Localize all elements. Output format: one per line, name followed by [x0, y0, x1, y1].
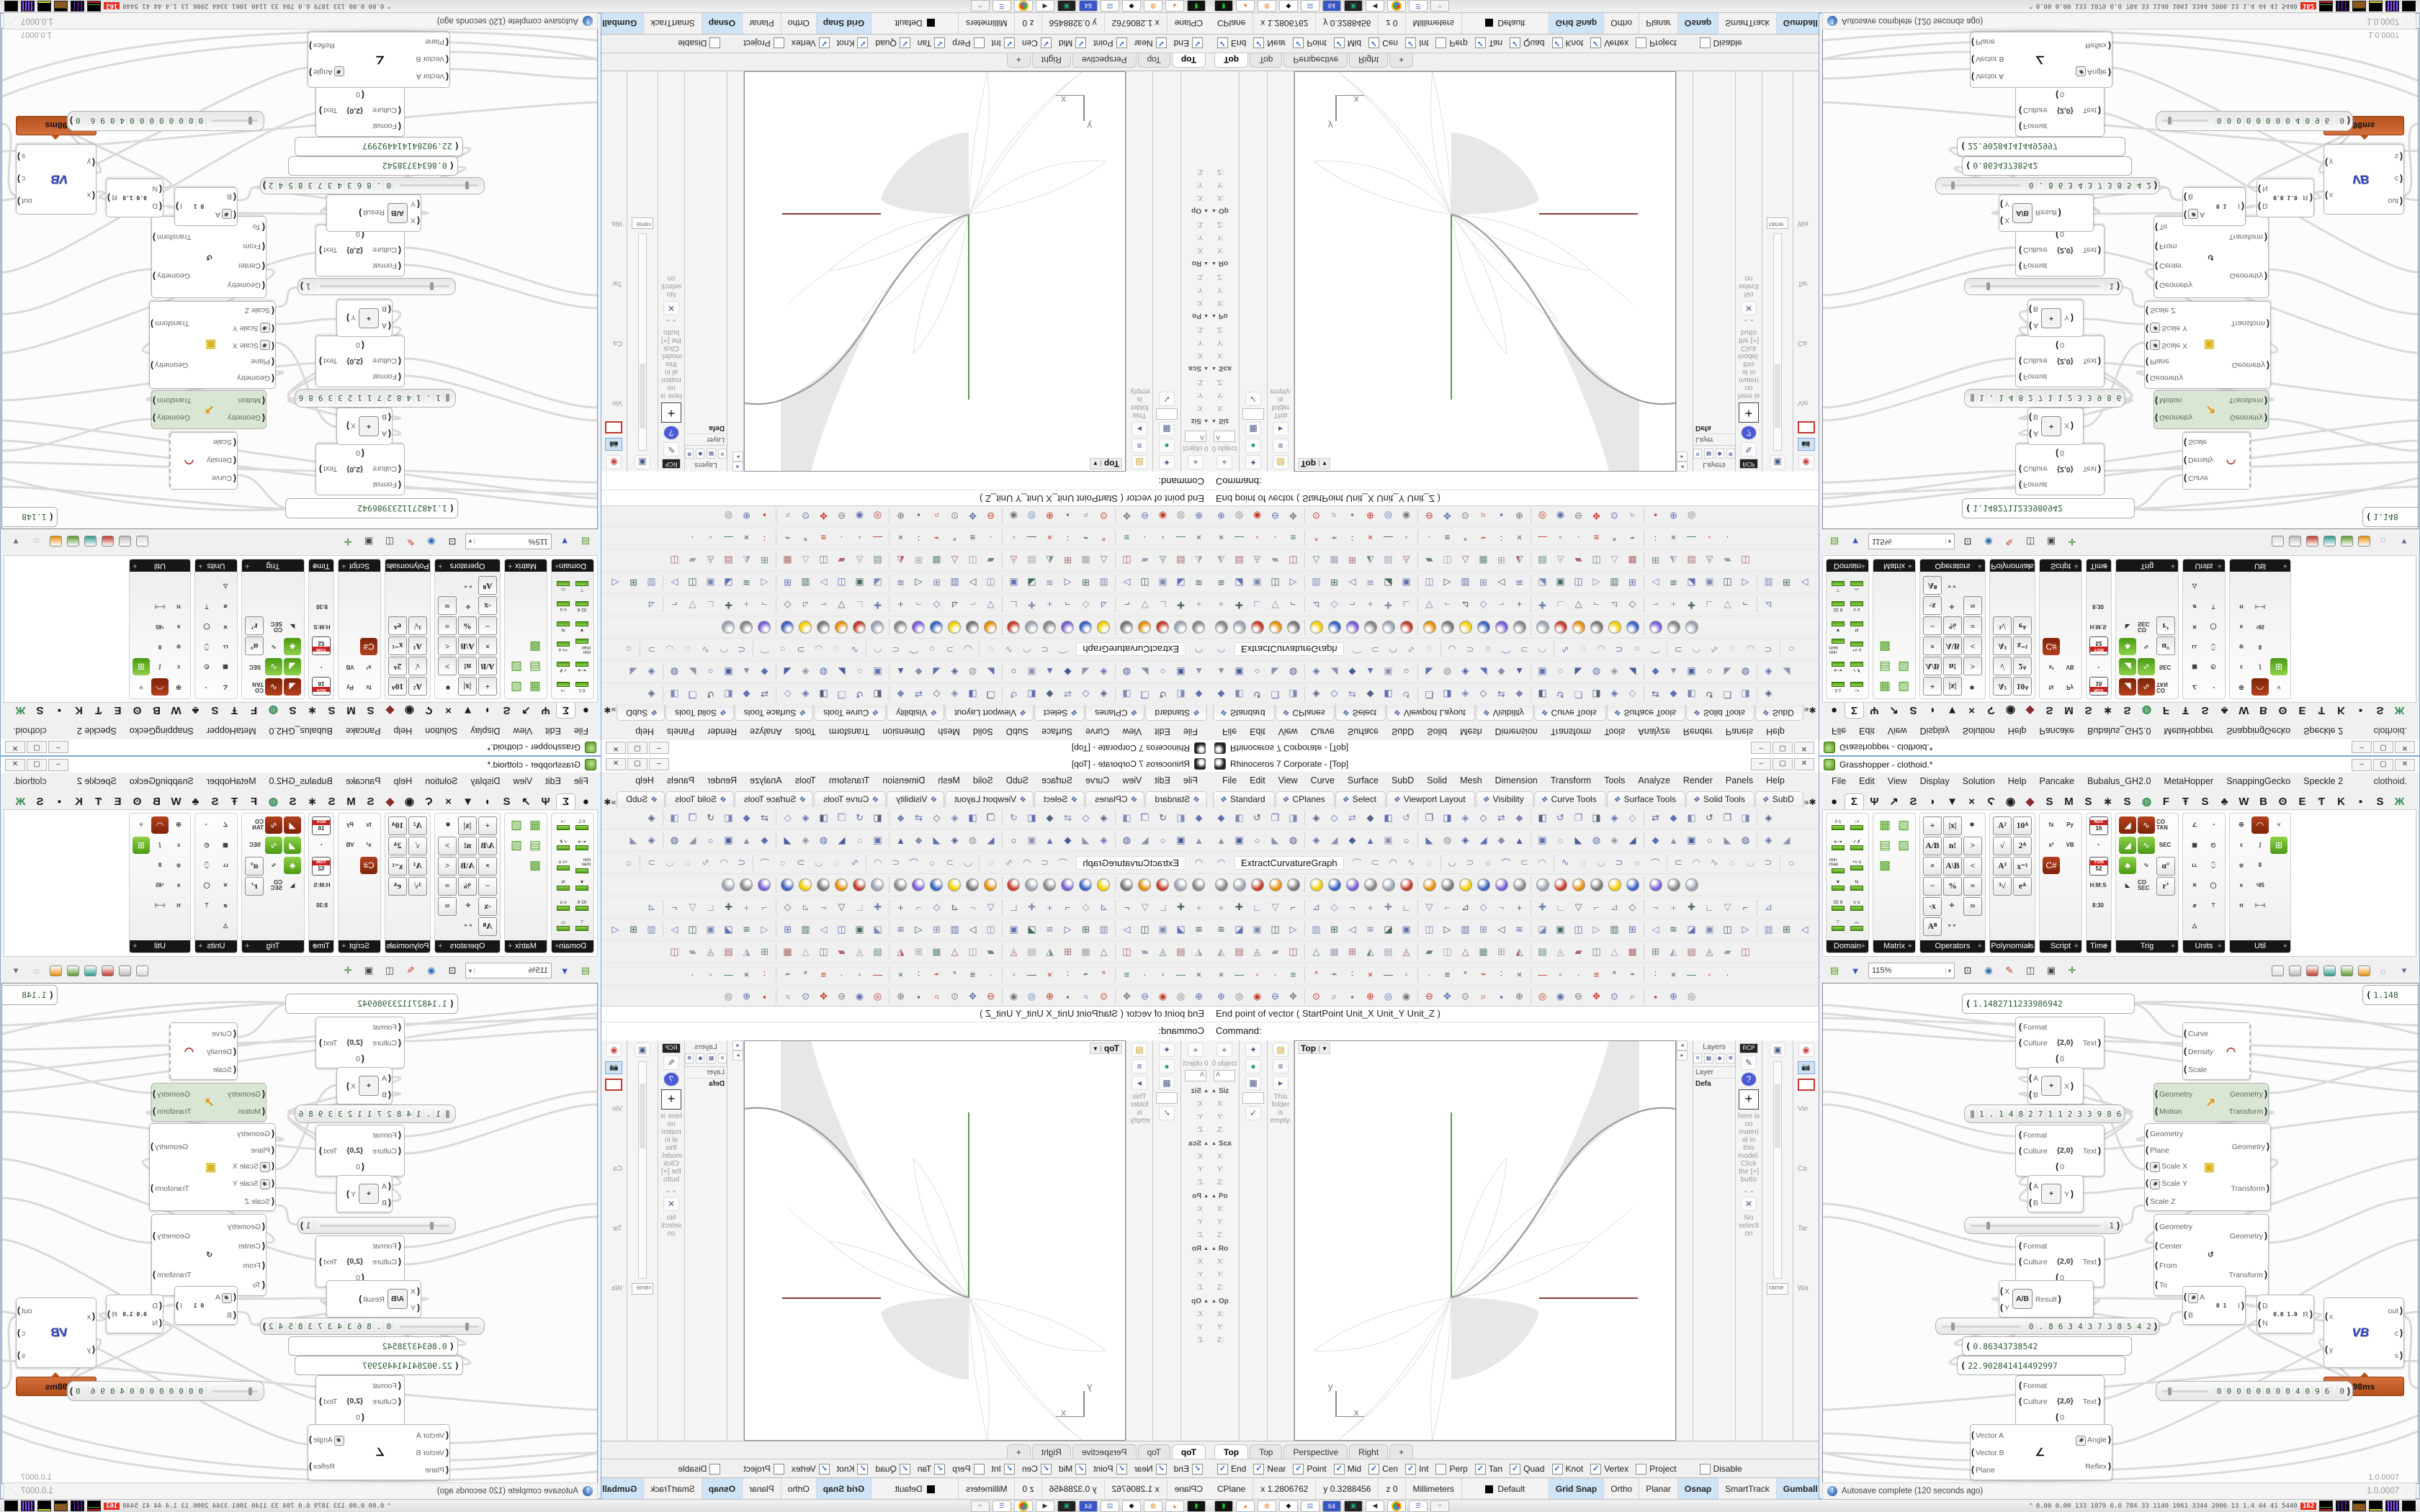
component-icon[interactable]: NOV16: [312, 816, 331, 835]
section-header-siz[interactable]: ▲Siz: [1183, 417, 1209, 425]
component-icon[interactable]: CO SEC: [265, 618, 282, 635]
node-domain[interactable]: ✱AB0 1I: [2182, 1286, 2246, 1325]
toolbar-icon[interactable]: [1569, 876, 1587, 894]
toolbar-icon[interactable]: ⊙: [1456, 988, 1474, 1005]
input-scale[interactable]: Scale: [2184, 1064, 2213, 1074]
input-scale[interactable]: Scale: [207, 438, 236, 448]
toolbar-icon[interactable]: ❐: [1266, 809, 1284, 827]
toolbar-icon[interactable]: [1095, 618, 1113, 636]
gh-tab-22[interactable]: B: [148, 796, 166, 809]
gh-tab-13[interactable]: S: [2079, 796, 2097, 809]
component-icon[interactable]: +v u: [555, 857, 572, 874]
toolbar-icon[interactable]: ◍: [665, 832, 684, 849]
input-n[interactable]: N: [152, 1318, 162, 1328]
component-icon[interactable]: fx: [360, 816, 377, 834]
toolbar-icon[interactable]: ◡: [1592, 641, 1610, 658]
component-icon[interactable]: ▭: [555, 577, 572, 595]
gh-tab-7[interactable]: ×: [1963, 703, 1981, 716]
toolbar-icon[interactable]: ◇: [779, 596, 797, 613]
toolbar-tab-solid-tools[interactable]: ❖Solid Tools: [1686, 791, 1754, 807]
component-icon[interactable]: ∿: [265, 816, 282, 834]
toolbar-icon[interactable]: ▣: [720, 832, 738, 849]
toolbar-icon[interactable]: ▣: [1172, 832, 1190, 849]
component-icon[interactable]: ∿: [2138, 638, 2155, 655]
toolbar-icon[interactable]: ◣: [1136, 663, 1154, 680]
menu-item-dimension[interactable]: Dimension: [1489, 774, 1544, 787]
component-icon[interactable]: ⇆: [555, 877, 572, 894]
view-tab-perspective[interactable]: Perspective: [1283, 53, 1348, 68]
input-b[interactable]: B: [2184, 193, 2205, 203]
toolbar-icon[interactable]: ⇄: [1343, 809, 1361, 827]
component-icon[interactable]: SEC: [246, 658, 264, 675]
toolbar-icon[interactable]: ◍: [1438, 663, 1456, 680]
component-icon[interactable]: φ: [170, 638, 187, 655]
component-icon[interactable]: 8:30: [2089, 897, 2107, 914]
component-icon[interactable]: ⇆: [1848, 877, 1865, 894]
gh-maximize-button[interactable]: ▢: [27, 759, 47, 771]
node-range[interactable]: DN0.0 1.0R: [106, 1295, 163, 1333]
component-icon[interactable]: %: [1943, 877, 1962, 896]
scroll-thumb[interactable]: [1775, 1084, 1780, 1148]
toolbar-icon[interactable]: ◣: [982, 832, 1000, 849]
gear-icon[interactable]: ❋: [1726, 1053, 1735, 1063]
input-x[interactable]: X: [2000, 217, 2009, 227]
component-icon[interactable]: n!: [1943, 837, 1962, 855]
toolbar-icon[interactable]: ◢: [1077, 663, 1095, 680]
monitor-chevron-icon[interactable]: ⌃: [387, 1503, 390, 1510]
toolbar-icon[interactable]: ◧: [720, 809, 738, 827]
ribbon-panel-label[interactable]: Domain+: [1827, 559, 1868, 572]
toolbar-icon[interactable]: ○: [774, 854, 792, 871]
component-icon[interactable]: CO TAN: [2156, 816, 2174, 834]
gh-tab-23[interactable]: ʘ: [2274, 796, 2292, 809]
output-y[interactable]: Y: [346, 1189, 356, 1199]
toolbar-icon[interactable]: ◆: [1343, 663, 1361, 680]
toolbar-icon[interactable]: ◡: [810, 854, 828, 871]
toolbar-icon[interactable]: ⊿: [1307, 899, 1325, 916]
toolbar-icon[interactable]: ◢: [779, 663, 797, 680]
toolbar-icon[interactable]: ◌: [828, 854, 846, 871]
menu-item-panels[interactable]: Panels: [1719, 774, 1760, 787]
toolbar-icon[interactable]: ◭: [1361, 943, 1379, 960]
input-data[interactable]: 0: [2056, 90, 2064, 99]
checkbox-icon[interactable]: ✓: [1475, 1464, 1486, 1475]
checkbox-icon[interactable]: [709, 38, 720, 49]
gh-tab-15[interactable]: S: [2118, 703, 2136, 716]
panel-expand-icon[interactable]: +: [198, 940, 202, 952]
toolbar-icon[interactable]: ○: [1005, 663, 1023, 680]
input-data[interactable]: 0: [2056, 1055, 2064, 1063]
toolbar-icon[interactable]: [1456, 618, 1474, 636]
node-scale-nu[interactable]: GeometryPlane✱Scale X✱Scale YScale Z▣Geo…: [149, 301, 276, 389]
input-scale-y[interactable]: ✱Scale Y: [233, 1178, 274, 1189]
gh-menu-item-view[interactable]: View: [506, 775, 539, 788]
gh-menu-item-file[interactable]: File: [568, 775, 595, 788]
toolbar-icon[interactable]: ◪: [1023, 921, 1041, 938]
node-format-fmt4[interactable]: FormatCulture{2,0}Text0: [2015, 1375, 2105, 1427]
toolbar-icon[interactable]: ◠: [869, 641, 887, 658]
input-culture[interactable]: Culture: [2019, 1258, 2048, 1266]
toolbar-icon[interactable]: ⌐: [665, 596, 684, 613]
viewport-menu-arrow-icon[interactable]: ▼: [1093, 1045, 1101, 1052]
toolbar-icon[interactable]: [1212, 618, 1230, 636]
toolbar-icon[interactable]: ⊿: [1095, 899, 1113, 916]
toolbar-icon[interactable]: [1023, 876, 1041, 894]
toolbar-icon[interactable]: ▽: [982, 899, 1000, 916]
toolbar-icon[interactable]: ▪: [1492, 988, 1510, 1005]
component-icon[interactable]: ✓✗: [555, 658, 572, 675]
input-from[interactable]: From: [2155, 243, 2192, 253]
taskbar-floppy-icon[interactable]: 64: [1322, 1, 1341, 12]
component-icon[interactable]: ✓✗: [555, 837, 572, 854]
view-tab-top[interactable]: Top: [1172, 53, 1206, 68]
osnap-disable[interactable]: Disable: [1700, 1464, 1742, 1475]
component-icon[interactable]: ▩: [526, 638, 544, 655]
toolbar-icon[interactable]: ▰: [833, 552, 851, 569]
component-icon[interactable]: rʼ: [245, 616, 264, 635]
toolbar-icon[interactable]: ⊞: [910, 943, 928, 960]
panel-expand-icon[interactable]: +: [2074, 940, 2079, 952]
toolbar-tab-viewport-layout[interactable]: ❖Viewport Layout: [1386, 791, 1475, 807]
toolbar-tab-standard[interactable]: ❖Standard: [1213, 705, 1275, 721]
component-icon[interactable]: 8:30: [2089, 598, 2107, 615]
active-layer-field[interactable]: Default: [1462, 12, 1549, 34]
toolbar-icon[interactable]: ○: [1154, 832, 1172, 849]
view-tab-new[interactable]: +: [1007, 1444, 1031, 1459]
input-motion[interactable]: Motion: [2155, 1106, 2192, 1116]
component-icon[interactable]: =: [438, 616, 457, 635]
toolbar-icon[interactable]: [1474, 876, 1492, 894]
toolbar-icon[interactable]: ×: [892, 529, 910, 546]
input-density[interactable]: Density: [2184, 1046, 2213, 1056]
toolbar-icon[interactable]: ⊙: [797, 507, 815, 524]
toolbar-icon[interactable]: ◣: [1569, 832, 1587, 849]
input-b[interactable]: B: [2029, 1197, 2038, 1207]
component-icon[interactable]: ✱: [1963, 678, 1981, 696]
toolbar-icon[interactable]: +: [1361, 596, 1379, 613]
node-vb[interactable]: xyVBoutcs: [16, 1297, 97, 1368]
component-icon[interactable]: ◢: [2119, 837, 2136, 854]
toolbar-icon[interactable]: ◇: [1474, 596, 1492, 613]
component-icon[interactable]: Aᴮ: [478, 576, 497, 595]
input-plane[interactable]: Plane: [1971, 37, 2004, 48]
toolbar-icon[interactable]: —: [1230, 966, 1248, 983]
checkbox-icon[interactable]: ✓: [934, 1464, 945, 1475]
toolbar-icon[interactable]: ∟: [1700, 596, 1718, 613]
resize-grip[interactable]: ⋰: [2403, 1488, 2411, 1495]
toolbar-icon[interactable]: ◇: [1325, 899, 1343, 916]
component-icon[interactable]: ≈: [1963, 596, 1982, 615]
toolbar-icon[interactable]: ⌁: [1325, 529, 1343, 546]
component-icon[interactable]: ▦: [526, 678, 544, 696]
component-icon[interactable]: CO TAN: [246, 678, 264, 696]
component-icon[interactable]: e: [170, 618, 187, 635]
toolbar-icon[interactable]: ▥: [1605, 921, 1623, 938]
toolbar-icon[interactable]: ◢: [1325, 663, 1343, 680]
toolbar-icon[interactable]: [1397, 876, 1415, 894]
node-rotate[interactable]: GeometryCenterFromTo↺GeometryTransform: [2154, 216, 2269, 298]
help-icon[interactable]: ?: [1741, 426, 1757, 440]
materials-panel[interactable]: RCP✎?+here is no material in this model.…: [658, 71, 685, 472]
checkbox-icon[interactable]: [1636, 1464, 1646, 1475]
taskbar-inkscape-icon[interactable]: ◆: [1122, 1500, 1141, 1512]
toolbar-icon[interactable]: ◪: [1172, 921, 1190, 938]
input-culture[interactable]: Culture: [372, 1039, 401, 1048]
gh-tab-25[interactable]: Ƭ: [89, 796, 107, 809]
toolbar-icon[interactable]: ∟: [1397, 899, 1415, 916]
toolbar-icon[interactable]: ◍: [1587, 663, 1605, 680]
toolbar-icon[interactable]: ≋: [1041, 574, 1059, 591]
toolbar-icon[interactable]: ⊙: [1605, 507, 1623, 524]
component-icon[interactable]: A²: [408, 677, 427, 696]
toolbar-icon[interactable]: ✚: [869, 596, 887, 613]
gh-menu-item-bubalus-gh2-0[interactable]: Bubalus_GH2.0: [2081, 775, 2157, 788]
toolbar-icon[interactable]: ▣: [1248, 921, 1266, 938]
input-d[interactable]: D: [152, 202, 162, 212]
menu-item-subd[interactable]: SubD: [1385, 774, 1420, 787]
gh-tab-15[interactable]: S: [2118, 796, 2136, 809]
node-domain[interactable]: ✱AB0 1I: [174, 1286, 238, 1325]
viewport-top[interactable]: Top▼ y x: [744, 71, 1126, 472]
checkbox-icon[interactable]: ✓: [1552, 38, 1563, 49]
toolbar-icon[interactable]: [982, 618, 1000, 636]
toolbar-icon[interactable]: ◭: [1510, 943, 1528, 960]
layers-panel[interactable]: Layers✕▦◆❋LayerDefa: [1693, 1040, 1735, 1441]
gh-tab-22[interactable]: B: [2254, 703, 2272, 716]
display-panel[interactable]: ▣rame: [1762, 1040, 1793, 1441]
toolbar-icon[interactable]: —: [1533, 529, 1551, 546]
toolbar-icon[interactable]: ▦: [1623, 552, 1641, 569]
toolbar-icon[interactable]: ◪: [869, 574, 887, 591]
expression-icon[interactable]: ✱: [2150, 340, 2160, 350]
toolbar-icon[interactable]: ×: [892, 966, 910, 983]
toolbar-icon[interactable]: [1438, 618, 1456, 636]
preview-shaded-icon[interactable]: [2306, 966, 2318, 976]
osnap-int[interactable]: ✓Int: [992, 1464, 1015, 1475]
component-icon[interactable]: H:M:S: [313, 877, 331, 894]
toolbar-icon[interactable]: ◫: [1736, 552, 1754, 569]
toolbar-icon[interactable]: ◪: [1682, 574, 1700, 591]
status-toggle-planar[interactable]: Planar: [742, 12, 781, 34]
toolbar-icon[interactable]: ⊕: [1664, 988, 1682, 1005]
toolbar-icon[interactable]: ⌕: [928, 988, 946, 1005]
component-icon[interactable]: ⊞: [2270, 658, 2287, 675]
component-icon[interactable]: A\B: [458, 636, 477, 655]
menu-item-curve[interactable]: Curve: [1304, 774, 1341, 787]
toolbar-icon[interactable]: ·: [1420, 529, 1438, 546]
toolbar-icon[interactable]: [779, 876, 797, 894]
toolbar-icon[interactable]: ▽: [982, 596, 1000, 613]
output-angle[interactable]: ✱Angle: [2076, 1434, 2111, 1446]
input-plane[interactable]: Plane: [2146, 1145, 2187, 1155]
menu-item-render[interactable]: Render: [701, 774, 743, 787]
ribbon-panel-label[interactable]: Matrix+: [1873, 559, 1915, 572]
osnap-vertex[interactable]: ✓Vertex: [792, 38, 830, 49]
gh-tab-11[interactable]: S: [362, 703, 380, 716]
toolbar-icon[interactable]: ·: [1569, 966, 1587, 983]
display-panel[interactable]: ▣rame: [627, 71, 658, 472]
close-icon[interactable]: ✕: [663, 1197, 679, 1211]
scroll-thumb[interactable]: [640, 1084, 645, 1148]
rhino-titlebar[interactable]: Rhinoceros 7 Corporate - [Top] – ▢ ✕: [601, 739, 1210, 756]
toolbar-tab-surface-tools[interactable]: ❖Surface Tools: [1607, 791, 1685, 807]
toolbar-icon[interactable]: ○: [1700, 663, 1718, 680]
node-format-fmt3[interactable]: FormatCulture{2,0}Text0: [2015, 225, 2105, 276]
component-icon[interactable]: e: [2233, 877, 2250, 894]
component-icon[interactable]: ⚬⚬: [460, 917, 477, 935]
component-icon[interactable]: ◔: [2089, 837, 2107, 854]
toolbar-icon[interactable]: ×: [1190, 966, 1208, 983]
node-add-x[interactable]: AB+X: [336, 1067, 393, 1104]
component-icon[interactable]: ▭: [555, 917, 572, 935]
toolbar-overflow-button[interactable]: »: [611, 797, 617, 807]
ribbon-panel-label[interactable]: Units+: [195, 940, 237, 953]
node-panel-panel-086[interactable]: 0.86343738542: [1962, 1336, 2132, 1356]
component-icon[interactable]: ▦: [1876, 816, 1894, 834]
toolbar-icon[interactable]: ▣: [1682, 832, 1700, 849]
doc-preview-orange-icon[interactable]: [50, 966, 62, 976]
checkbox-icon[interactable]: ✓: [819, 1464, 830, 1475]
toolbar-icon[interactable]: ▣: [1397, 921, 1415, 938]
toolbar-icon[interactable]: ◬: [1154, 943, 1172, 960]
toolbar-icon[interactable]: ˟: [946, 529, 964, 546]
component-icon[interactable]: ⇆: [555, 618, 572, 635]
toolbar-icon[interactable]: ◢: [1474, 663, 1492, 680]
toolbar-icon[interactable]: ◫: [1118, 552, 1136, 569]
toolbar-icon[interactable]: ○: [1551, 663, 1569, 680]
slider-handle[interactable]: [465, 182, 469, 190]
toolbar-icon[interactable]: ∶: [756, 529, 774, 546]
viewport-top[interactable]: Top▼ y x: [1294, 1040, 1676, 1441]
toolbar-icon[interactable]: ∶: [1492, 966, 1510, 983]
toolbar-icon[interactable]: ≡: [1284, 966, 1302, 983]
node-move[interactable]: GeometryMotion↗GeometryTransform: [151, 390, 266, 429]
toolbar-icon[interactable]: ∶: [1343, 529, 1361, 546]
toolbar-icon[interactable]: ◇: [1623, 809, 1641, 827]
toolbar-icon[interactable]: ↺: [1397, 685, 1415, 703]
toolbar-icon[interactable]: ◢: [1474, 832, 1492, 849]
toolbar-icon[interactable]: ◍: [1736, 832, 1754, 849]
taskbar-firefox-icon[interactable]: ◕: [1236, 1500, 1255, 1512]
toolbar-icon[interactable]: ▰: [1136, 943, 1154, 960]
toolbar-icon[interactable]: ◇: [1325, 809, 1343, 827]
sketch-icon[interactable]: ✎: [2002, 963, 2017, 978]
input-x[interactable]: x: [2325, 191, 2333, 201]
component-icon[interactable]: φ: [2233, 857, 2250, 874]
toolbar-icon[interactable]: ∿: [846, 641, 864, 658]
osnap-knot[interactable]: ✓Knot: [837, 38, 869, 49]
gh-tab-10[interactable]: ◆: [381, 703, 399, 717]
component-icon[interactable]: ⇤⇥: [573, 658, 591, 675]
toolbar-icon[interactable]: ▪: [1059, 988, 1077, 1005]
component-icon[interactable]: -x: [1923, 596, 1942, 615]
toolbar-icon[interactable]: ∿: [696, 641, 714, 658]
z-coordinate[interactable]: z 0: [1015, 12, 1041, 34]
x-coordinate[interactable]: x 1.2806762: [1253, 1478, 1316, 1500]
toolbar-icon[interactable]: ▤: [869, 943, 887, 960]
filter-input[interactable]: A: [1214, 431, 1235, 442]
component-icon[interactable]: ʃ: [2251, 837, 2269, 854]
widget-icon[interactable]: ▣: [2043, 963, 2059, 978]
camera-widget-icon[interactable]: ◫: [382, 534, 398, 549]
component-icon[interactable]: |x|: [458, 816, 477, 835]
toolbar-icon[interactable]: —: [1533, 966, 1551, 983]
component-icon[interactable]: C#: [360, 857, 377, 874]
viewport-label[interactable]: Top▼: [1298, 458, 1330, 469]
toolbar-icon[interactable]: ○: [619, 641, 637, 658]
node-slider-slider-mid[interactable]: 1.1482711233986942: [1964, 389, 2125, 408]
input-plane[interactable]: Plane: [233, 1145, 274, 1155]
toolbar-icon[interactable]: ◭: [1041, 552, 1059, 569]
node-format-fmt4[interactable]: FormatCulture{2,0}Text0: [315, 1375, 405, 1427]
node-add-y[interactable]: AB+Y: [2027, 300, 2084, 337]
component-icon[interactable]: ▨: [1895, 837, 1912, 854]
toolbar-icon[interactable]: ◆: [1664, 685, 1682, 703]
toolbar-icon[interactable]: ◁: [1343, 574, 1361, 591]
toolbar-icon[interactable]: ✚: [1379, 596, 1397, 613]
toolbar-icon[interactable]: ▤: [1023, 943, 1041, 960]
gh-tab-26[interactable]: K: [70, 796, 88, 809]
layer-row-default[interactable]: Defa: [1693, 423, 1735, 433]
viewport-label[interactable]: Top▼: [1090, 458, 1122, 469]
output-y[interactable]: Y: [346, 313, 356, 323]
toolbar-icon[interactable]: ⊞: [1474, 921, 1492, 938]
component-icon[interactable]: 0 1: [573, 816, 591, 834]
node-format-fmt4[interactable]: FormatCulture{2,0}Text0: [315, 85, 405, 137]
display-scrollbar[interactable]: [638, 1061, 647, 1279]
toolbar-tab-curve-tools[interactable]: ❖Curve Tools: [814, 791, 886, 807]
toolbar-icon[interactable]: ⊿: [1456, 899, 1474, 916]
slider-handle[interactable]: [1986, 283, 1990, 291]
name-box[interactable]: rame: [1767, 1283, 1788, 1295]
toolbar-icon[interactable]: ▥: [642, 921, 660, 938]
toolbar-icon[interactable]: ◆: [910, 832, 928, 849]
toolbar-icon[interactable]: ⌒: [905, 641, 923, 658]
toolbar-icon[interactable]: ↺: [1397, 809, 1415, 827]
input-scale-y[interactable]: ✱Scale Y: [2146, 323, 2187, 334]
toolbar-icon[interactable]: ◠: [1688, 854, 1706, 871]
osnap-perp[interactable]: Perp: [952, 38, 984, 49]
node-rotate[interactable]: GeometryCenterFromTo↺GeometryTransform: [151, 1214, 266, 1296]
output-s[interactable]: s: [17, 152, 32, 162]
toolbar-icon[interactable]: ◪: [720, 921, 738, 938]
toolbar-icon[interactable]: ◇: [1077, 899, 1095, 916]
component-icon[interactable]: ʟʟ: [217, 638, 234, 655]
toolbar-icon[interactable]: ∟: [1154, 596, 1172, 613]
component-icon[interactable]: −: [478, 877, 497, 896]
osnap-mid[interactable]: ✓Mid: [1334, 38, 1361, 49]
toolbar-icon[interactable]: [833, 876, 851, 894]
toolbar-icon[interactable]: ⊞: [910, 552, 928, 569]
materials-panel[interactable]: RCP✎?+here is no material in this model.…: [1735, 71, 1762, 472]
toolbar-icon[interactable]: ≋: [1361, 574, 1379, 591]
node-slider-slider-4096[interactable]: 000000004096 0: [2156, 1381, 2353, 1401]
help-icon[interactable]: ?: [663, 1072, 679, 1086]
component-icon[interactable]: ✠: [2233, 816, 2250, 834]
ribbon-panel-label[interactable]: Polynomials+: [385, 559, 430, 572]
toolbar-icon[interactable]: ✥: [1284, 507, 1302, 524]
node-vb[interactable]: xyVBoutcs: [2323, 144, 2404, 215]
toolbar-icon[interactable]: ◎: [1023, 507, 1041, 524]
node-division[interactable]: XYA/BResult: [326, 194, 421, 232]
node-panel-panel-229[interactable]: 22.902841414492997: [295, 1356, 463, 1375]
output-y[interactable]: Y: [2064, 313, 2074, 323]
toolbar-icon[interactable]: ▰: [1136, 552, 1154, 569]
checkbox-icon[interactable]: ✓: [1293, 38, 1304, 49]
osnap-project[interactable]: Project: [743, 38, 784, 49]
selection-lasso-icon[interactable]: ◌: [2375, 963, 2391, 978]
component-icon[interactable]: ʃ: [151, 658, 169, 675]
